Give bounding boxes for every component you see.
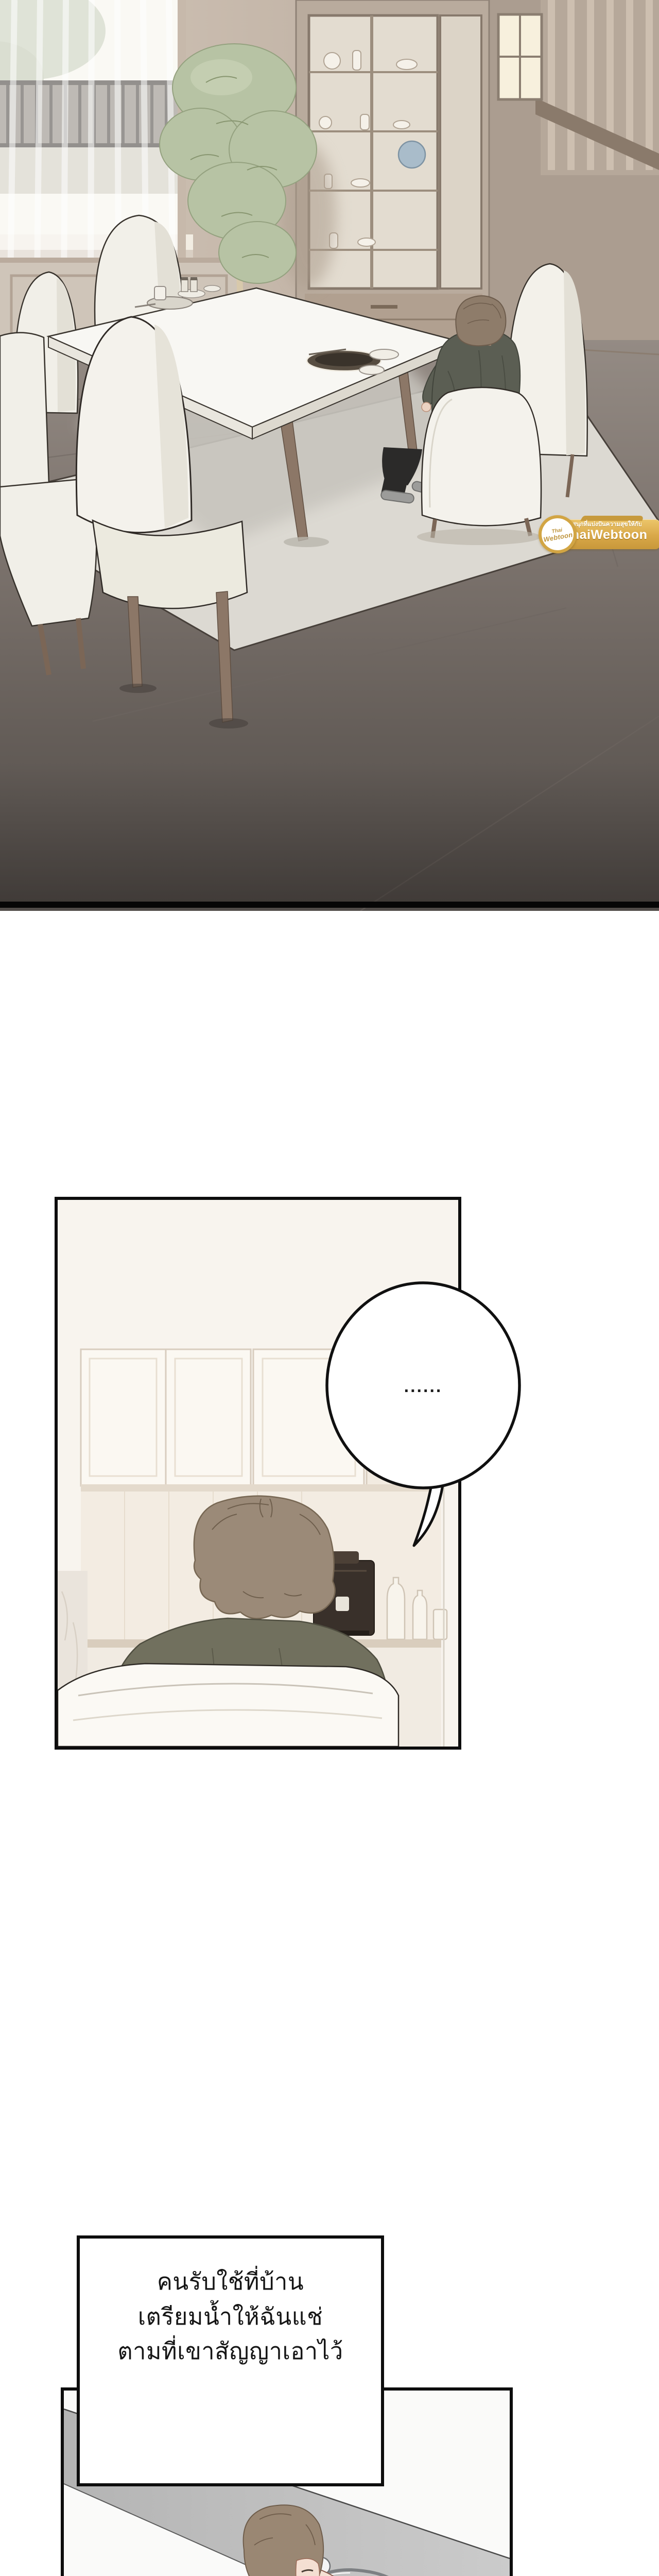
- narration-box: คนรับใช้ที่บ้าน เตรียมน้ำให้ฉันแช่ ตามที…: [77, 2235, 384, 2486]
- watermark-badge: เว็บสนุกที่แบ่งปันความสุขให้กับทุกคน Tha…: [539, 515, 659, 553]
- narration-line: ตามที่เขาสัญญาเอาไว้: [80, 2334, 381, 2369]
- small-window: [498, 14, 542, 99]
- panel-border-bottom: [0, 902, 659, 908]
- blue-plate: [398, 141, 425, 168]
- bubble-text: ......: [404, 1377, 443, 1396]
- thaiwebtoon-logo-icon: Thai Webtoon: [535, 512, 580, 556]
- narration-line: เตรียมน้ำให้ฉันแช่: [80, 2299, 381, 2334]
- narration-line: คนรับใช้ที่บ้าน: [80, 2264, 381, 2299]
- panel-dining-room: [0, 0, 659, 911]
- hand: [422, 402, 431, 412]
- webtoon-page: เว็บสนุกที่แบ่งปันความสุขให้กับทุกคน Tha…: [0, 0, 659, 2576]
- chair-back: [58, 1664, 398, 1747]
- speech-bubble: ......: [314, 1268, 535, 1557]
- face: [296, 2558, 320, 2576]
- dining-room-scene: [0, 0, 659, 911]
- stair-railing: [535, 0, 659, 175]
- dining-chair: [417, 387, 541, 545]
